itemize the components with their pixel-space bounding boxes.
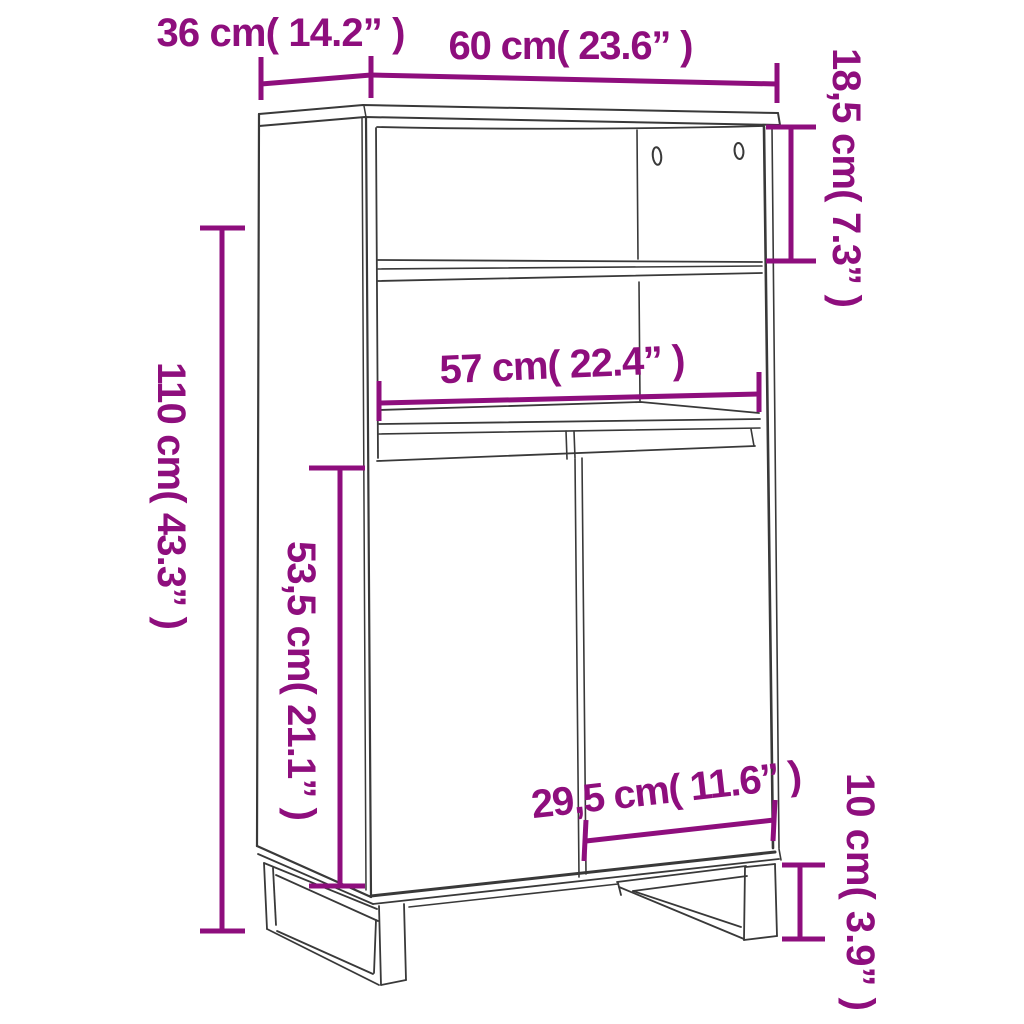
svg-text:36 cm( 14.2” ): 36 cm( 14.2” ) [157, 11, 406, 55]
svg-text:60 cm( 23.6” ): 60 cm( 23.6” ) [449, 24, 694, 68]
svg-text:110 cm( 43.3” ): 110 cm( 43.3” ) [149, 362, 193, 630]
svg-text:10 cm( 3.9” ): 10 cm( 3.9” ) [838, 773, 882, 1011]
svg-text:18,5 cm( 7.3” ): 18,5 cm( 7.3” ) [824, 48, 868, 308]
svg-text:53,5 cm( 21.1” ): 53,5 cm( 21.1” ) [279, 541, 323, 821]
